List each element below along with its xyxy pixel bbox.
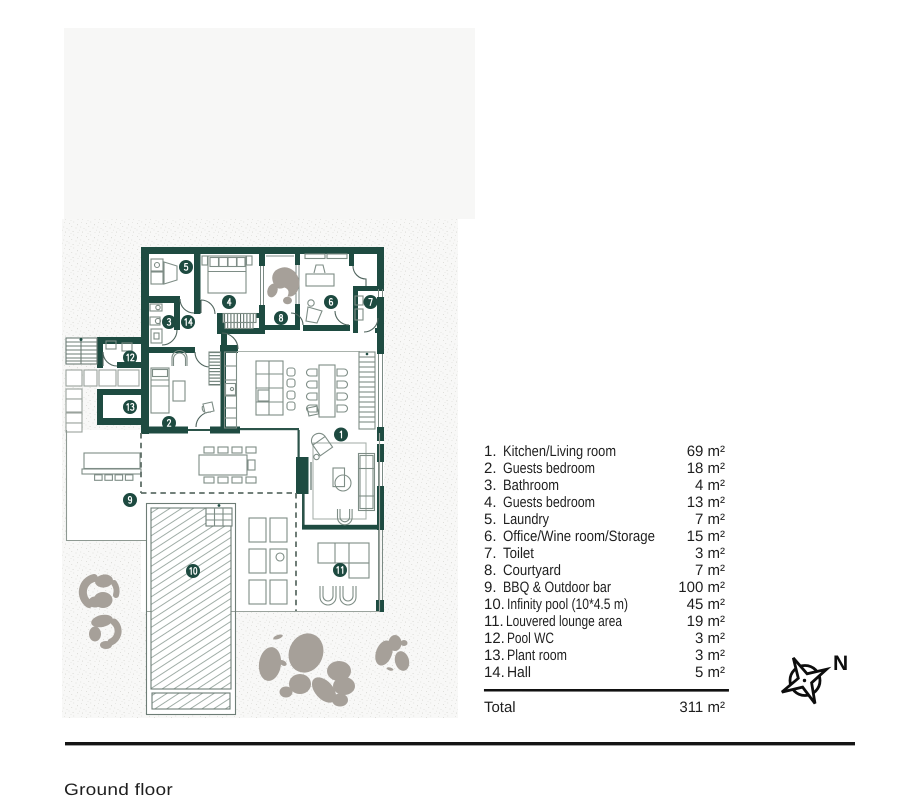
svg-text:45 m²: 45 m²	[687, 596, 725, 613]
svg-text:Kitchen/Living room: Kitchen/Living room	[503, 443, 616, 460]
svg-text:15 m²: 15 m²	[687, 528, 725, 545]
svg-text:6.: 6.	[484, 528, 497, 545]
svg-text:Hall: Hall	[507, 664, 531, 681]
svg-text:Laundry: Laundry	[503, 511, 549, 528]
svg-text:3.: 3.	[484, 477, 497, 494]
svg-text:Bathroom: Bathroom	[503, 477, 559, 494]
svg-text:7 m²: 7 m²	[695, 511, 725, 528]
svg-text:Pool WC: Pool WC	[507, 630, 554, 647]
svg-text:N: N	[833, 652, 848, 675]
svg-text:Guests bedroom: Guests bedroom	[503, 460, 595, 477]
svg-text:Infinity pool (10*4.5 m): Infinity pool (10*4.5 m)	[507, 596, 628, 613]
svg-text:19 m²: 19 m²	[687, 613, 725, 630]
svg-text:11.: 11.	[484, 613, 504, 630]
svg-text:Plant room: Plant room	[507, 647, 567, 664]
svg-text:3 m²: 3 m²	[695, 630, 725, 647]
svg-text:1.: 1.	[484, 443, 497, 460]
svg-text:69 m²: 69 m²	[687, 443, 725, 460]
svg-text:4.: 4.	[484, 494, 497, 511]
svg-text:14.: 14.	[484, 664, 505, 681]
svg-text:5.: 5.	[484, 511, 497, 528]
svg-text:10.: 10.	[484, 596, 505, 613]
svg-text:3 m²: 3 m²	[695, 545, 725, 562]
svg-text:18 m²: 18 m²	[687, 460, 725, 477]
svg-text:2.: 2.	[484, 460, 497, 477]
svg-text:Ground floor: Ground floor	[64, 781, 173, 799]
svg-text:Office/Wine room/Storage: Office/Wine room/Storage	[503, 528, 655, 545]
svg-text:13 m²: 13 m²	[687, 494, 725, 511]
svg-text:8.: 8.	[484, 562, 497, 579]
svg-text:7.: 7.	[484, 545, 497, 562]
svg-text:311 m²: 311 m²	[679, 699, 725, 716]
svg-text:Toilet: Toilet	[503, 545, 535, 562]
svg-text:100 m²: 100 m²	[678, 579, 725, 596]
svg-text:Louvered lounge area: Louvered lounge area	[506, 613, 623, 630]
svg-text:Total: Total	[484, 699, 516, 716]
svg-text:BBQ & Outdoor bar: BBQ & Outdoor bar	[503, 579, 611, 596]
svg-text:Courtyard: Courtyard	[503, 562, 561, 579]
svg-text:7 m²: 7 m²	[695, 562, 725, 579]
svg-text:5 m²: 5 m²	[695, 664, 725, 681]
svg-text:4 m²: 4 m²	[695, 477, 725, 494]
svg-text:13.: 13.	[484, 647, 505, 664]
svg-text:9.: 9.	[484, 579, 497, 596]
svg-text:3 m²: 3 m²	[695, 647, 725, 664]
svg-text:12.: 12.	[484, 630, 505, 647]
svg-text:Guests bedroom: Guests bedroom	[503, 494, 595, 511]
